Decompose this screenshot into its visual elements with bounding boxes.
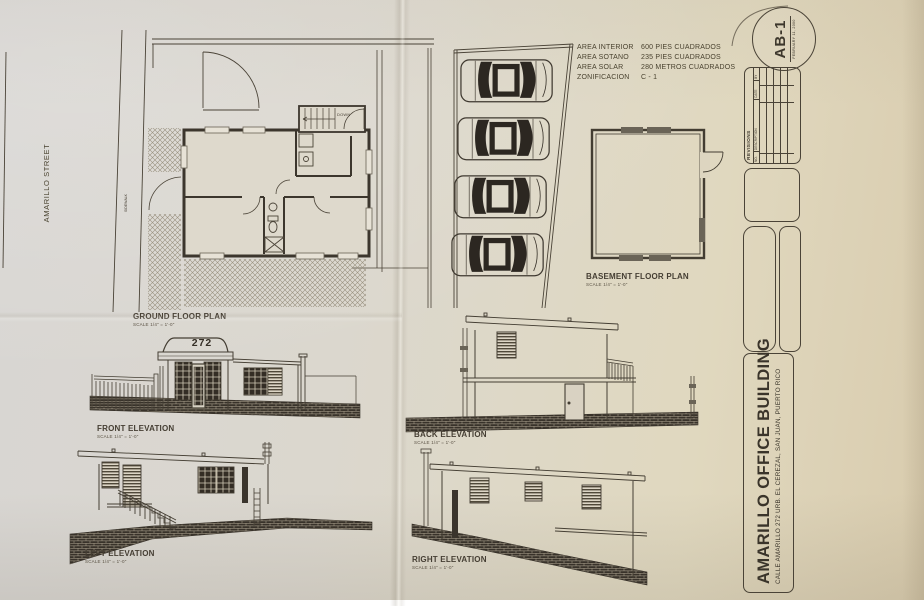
right-elevation-drawing — [398, 438, 750, 596]
parked-cars — [452, 60, 552, 276]
side-post — [299, 354, 356, 410]
revisions-col-by: BY — [754, 68, 759, 80]
ground-masonry — [90, 396, 360, 418]
sheet-number: AB-1 — [772, 17, 791, 62]
area-label: AREA SOLAR — [577, 63, 641, 73]
vent-pipe — [263, 442, 271, 464]
area-value: C - 1 — [641, 73, 657, 83]
revisions-empty-row — [788, 68, 794, 163]
back-elevation-title: BACK ELEVATION — [414, 430, 487, 439]
louver-window — [102, 462, 119, 488]
louver-window — [497, 332, 516, 358]
sheet-date: FEBRUARY 11, 2000 — [792, 19, 796, 58]
title-block: AMARILLO OFFICE BUILDING CALLE AMARILLO … — [743, 353, 794, 593]
dark-strip — [452, 490, 458, 538]
revisions-title: REVISIONS — [745, 68, 754, 163]
louver-window — [582, 485, 601, 509]
right-post — [689, 376, 696, 418]
revisions-col-date: DATE — [754, 80, 759, 99]
title-block-empty-box — [743, 226, 776, 352]
stairs-down-label: DOWN — [337, 112, 350, 117]
parking-area-drawing — [445, 36, 580, 311]
car-icon — [461, 60, 552, 102]
title-block-empty-box — [744, 168, 800, 222]
area-value: 600 PIES CUADRADOS — [641, 43, 721, 53]
ground-masonry — [406, 412, 698, 432]
blueprint-sheet: AMARILLO STREET SIDEWALK DOWN 272 GROUND… — [0, 0, 924, 600]
ornamental-block-panel — [204, 362, 221, 400]
revisions-col-description: DESCRIPTION — [754, 99, 759, 151]
revisions-col-no: NO. — [754, 151, 759, 163]
left-column — [460, 328, 468, 418]
left-elevation-title: LEFT ELEVATION — [85, 549, 155, 558]
front-elevation-title: FRONT ELEVATION — [97, 424, 174, 433]
roof-slab — [430, 462, 645, 481]
site-plan-drawing — [0, 0, 450, 330]
paper-edge-shadow — [902, 0, 924, 600]
basement-plan-title: BASEMENT FLOOR PLAN — [586, 272, 689, 281]
revisions-empty-row — [767, 68, 774, 163]
area-info-row: AREA SOLAR 280 METROS CUADRADOS — [577, 63, 735, 73]
basement-windows — [619, 127, 705, 261]
left-elevation-drawing — [52, 438, 387, 593]
ornamental-block-panel — [175, 362, 192, 400]
area-info-row: ZONIFICACION C - 1 — [577, 73, 735, 83]
basement-plan-scale: SCALE 1/4" = 1'-0" — [586, 282, 628, 287]
right-elevation-title: RIGHT ELEVATION — [412, 555, 487, 564]
street-name-label: AMARILLO STREET — [42, 138, 58, 228]
area-label: AREA INTERIOR — [577, 43, 641, 53]
back-elevation-scale: SCALE 1/4" = 1'-0" — [414, 440, 456, 445]
louver-window — [525, 482, 542, 501]
revisions-empty-row — [774, 68, 781, 163]
revisions-table: REVISIONS NO. DESCRIPTION DATE BY — [744, 67, 801, 164]
area-label: AREA SOTANO — [577, 53, 641, 63]
railing — [607, 359, 633, 420]
ground-floor-plan-title: GROUND FLOOR PLAN — [133, 312, 226, 321]
left-elevation-scale: SCALE 1/4" = 1'-0" — [85, 559, 127, 564]
revisions-empty-row — [760, 68, 767, 163]
louver-window — [470, 478, 489, 503]
area-info-table: AREA INTERIOR 600 PIES CUADRADOS AREA SO… — [577, 43, 735, 83]
car-icon — [458, 118, 549, 160]
porch-stairs — [107, 490, 176, 530]
back-door — [565, 384, 584, 420]
project-address: CALLE AMARILLO 272 URB. EL CEREZAL, SAN … — [775, 362, 782, 584]
front-elevation-scale: SCALE 1/4" = 1'-0" — [97, 434, 139, 439]
area-label: ZONIFICACION — [577, 73, 641, 83]
left-post — [421, 449, 431, 526]
car-icon — [455, 176, 546, 218]
sidewalk-label: SIDEWALK — [124, 186, 132, 212]
revisions-empty-row — [781, 68, 788, 163]
dark-strip — [242, 467, 248, 503]
area-value: 235 PIES CUADRADOS — [641, 53, 721, 63]
area-info-row: AREA INTERIOR 600 PIES CUADRADOS — [577, 43, 735, 53]
upper-walls — [475, 330, 607, 378]
house-number: 272 — [186, 337, 218, 349]
basement-plan-drawing — [583, 118, 728, 273]
sheet-number-seal: AB-1 FEBRUARY 11, 2000 — [752, 7, 816, 71]
car-icon — [452, 234, 543, 276]
ground-floor-plan-scale: SCALE 1/4" = 1'-0" — [133, 322, 175, 327]
title-block-empty-box — [779, 226, 801, 352]
roof-slab — [466, 313, 618, 330]
project-title: AMARILLO OFFICE BUILDING — [755, 362, 774, 584]
right-elevation-scale: SCALE 1/4" = 1'-0" — [412, 565, 454, 570]
mid-slab — [463, 378, 636, 382]
area-value: 280 METROS CUADRADOS — [641, 63, 735, 73]
area-info-row: AREA SOTANO 235 PIES CUADRADOS — [577, 53, 735, 63]
